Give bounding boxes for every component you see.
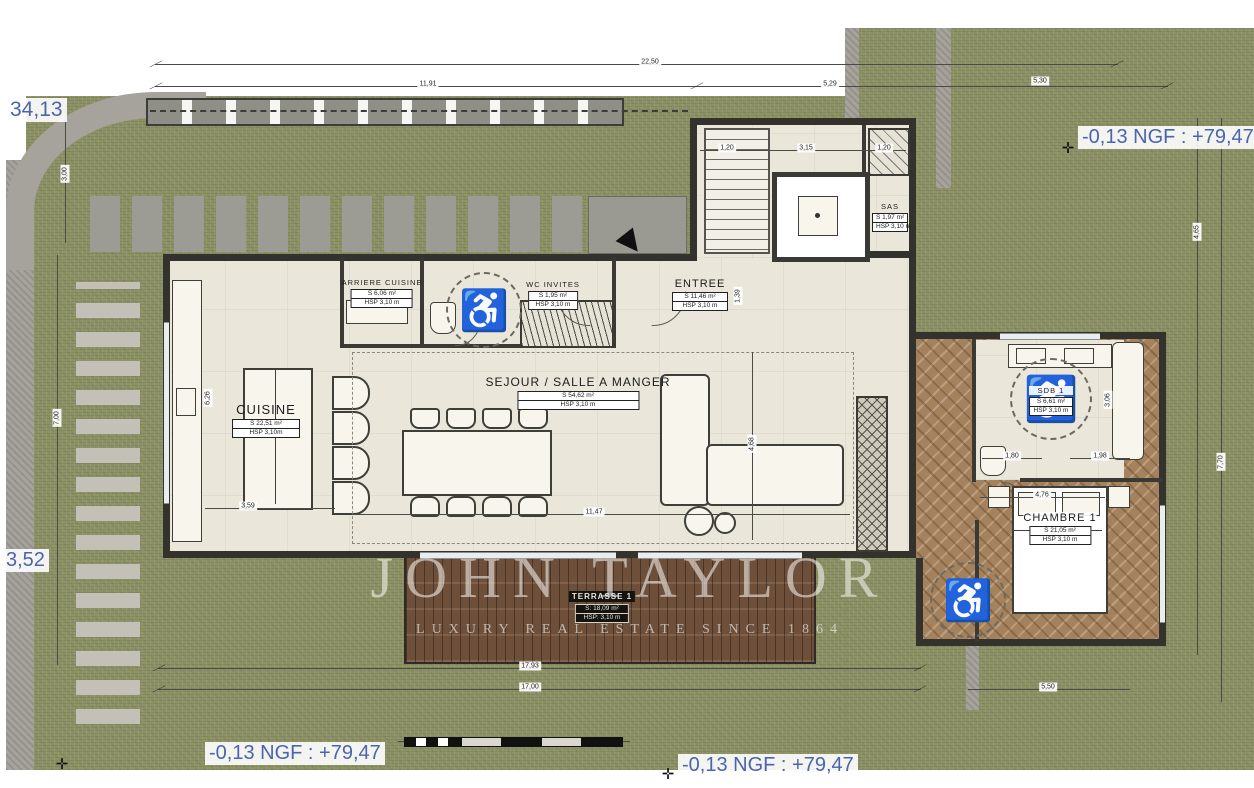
dim-label: 1,80 <box>1003 452 1021 461</box>
room-name: WC INVITES <box>526 280 580 289</box>
dim-tick: ／ <box>689 77 704 96</box>
dim-label: 1,98 <box>1091 452 1109 461</box>
scale-bar-segment <box>448 737 461 747</box>
ngf-label-bottom-left: -0,13 NGF : +79,47 <box>205 742 385 765</box>
dim-label: 3,15 <box>797 144 815 153</box>
dim-label: 5,50 <box>1039 683 1057 692</box>
dim-line <box>1221 118 1222 702</box>
dining-table <box>402 430 552 496</box>
window <box>1000 333 1100 340</box>
scale-bar-segment <box>501 737 543 747</box>
room-label-sdb-1: SDB 1 S 6,61 m²HSP 3,10 m <box>1029 386 1073 416</box>
dim-label: 4,76 <box>1033 491 1051 500</box>
room-area: S 22,51 m² <box>233 420 299 428</box>
kitchen-sink <box>176 388 196 416</box>
property-dash-line <box>150 110 688 112</box>
pouf <box>714 512 736 534</box>
bathtub <box>1112 342 1144 460</box>
dim-label: 1,20 <box>718 144 736 153</box>
wheelchair-glyph: ♿ <box>459 287 509 334</box>
dim-label: 7,70 <box>1217 453 1226 471</box>
boundary-wall-stub-2 <box>936 28 951 188</box>
wheelchair-icon: ♿ <box>446 272 522 348</box>
room-area: S 21,05 m² <box>1030 527 1090 535</box>
scale-bar-segment <box>581 737 623 747</box>
dim-label: 3,06 <box>1104 391 1113 409</box>
chair <box>410 408 440 429</box>
boundary-wall-stub-1 <box>845 28 859 120</box>
room-hsp: HSP 3,10 m <box>352 298 412 307</box>
room-hsp: HSP 3,10 m <box>673 301 727 310</box>
room-hsp: HSP 3,10 m <box>1030 406 1072 415</box>
room-area: S 1,95 m² <box>529 292 577 300</box>
ngf-label-top-right: -0,13 NGF : +79,47 <box>1078 126 1254 149</box>
room-name: SAS <box>872 202 908 211</box>
wall <box>916 639 1166 646</box>
wall <box>916 558 923 646</box>
wheelchair-glyph: ♿ <box>943 577 993 624</box>
dim-line <box>205 508 335 509</box>
window <box>1160 505 1165 623</box>
room-hsp: HSP 3,10 m <box>1030 535 1090 544</box>
dim-line <box>155 86 1168 87</box>
dim-label: 17,93 <box>519 662 541 671</box>
room-hsp: HSP 3,10 m <box>873 222 907 231</box>
dim-label: 5,30 <box>1031 77 1049 86</box>
wheelchair-icon: ♿ <box>930 562 1006 638</box>
pouf <box>684 506 714 536</box>
elevator-dot <box>815 213 820 218</box>
room-label-chambre-1: CHAMBRE 1 S 21,05 m²HSP 3,10 m <box>1023 512 1096 545</box>
window <box>164 322 169 504</box>
ngf-label-bottom-right: -0,13 NGF : +79,47 <box>678 754 858 777</box>
chair <box>446 408 476 429</box>
scale-bar-segment <box>461 737 503 747</box>
elevation-label-left: 3,52 <box>2 549 49 572</box>
boundary-wall-top <box>146 98 624 126</box>
room-label-cuisine: CUISINE S 22,51 m²HSP 3,10m <box>232 402 300 438</box>
kitchen-island <box>243 368 313 510</box>
dim-line <box>155 64 1118 65</box>
partition <box>1020 478 1162 482</box>
toilet <box>980 446 1006 476</box>
watermark-tagline: LUXURY REAL ESTATE SINCE 1864 <box>360 622 900 638</box>
dim-label: 4,65 <box>1193 223 1202 241</box>
dim-label: 11,47 <box>584 508 605 517</box>
watermark-brand: JOHN TAYLOR <box>360 544 900 611</box>
room-name: ENTREE <box>672 278 728 290</box>
room-hsp: HSP 3,10 m <box>529 300 577 309</box>
dim-label: 3,59 <box>239 502 257 511</box>
room-hsp: HSP 3,10m <box>233 428 299 437</box>
dim-label: 22,50 <box>639 58 661 67</box>
wall <box>909 118 916 258</box>
dim-label: 4,68 <box>748 435 757 453</box>
wall <box>690 118 697 258</box>
dim-label: 5,29 <box>821 80 839 89</box>
room-area: S 6,61 m² <box>1030 398 1072 406</box>
room-name: SDB 1 <box>1029 386 1073 395</box>
nightstand <box>1108 486 1130 508</box>
room-label-entree: ENTREE S 11,46 m²HSP 3,10 m <box>672 278 728 311</box>
chair <box>518 408 548 429</box>
room-name: CUISINE <box>232 402 300 417</box>
dim-label: 7,00 <box>53 409 62 427</box>
survey-cross-icon: ✛ <box>56 755 69 773</box>
floor-plan-canvas: ♿ ♿ ♿ CUISINE S 22,51 m²HSP 3,10m ARRIER… <box>0 0 1254 788</box>
dim-label: 1,20 <box>875 144 893 153</box>
room-name: ARRIERE CUISINE <box>342 278 423 287</box>
room-label-sas: SAS S 1,97 m²HSP 3,10 m <box>872 202 908 232</box>
dim-label: 3,00 <box>61 165 70 183</box>
survey-cross-icon: ✛ <box>1062 139 1075 157</box>
dim-label: 1,39 <box>734 287 743 305</box>
dim-label: 6,26 <box>204 389 213 407</box>
wall <box>909 254 916 558</box>
dim-tick: ／ <box>148 55 163 74</box>
room-label-wc-invites: WC INVITES S 1,95 m²HSP 3,10 m <box>526 280 580 310</box>
room-area: S 1,97 m² <box>873 214 907 222</box>
partition <box>972 339 976 482</box>
staircase <box>704 128 770 254</box>
room-area: S 54,62 m² <box>518 392 638 400</box>
dim-label: 11,91 <box>418 80 439 89</box>
wall <box>690 118 916 125</box>
room-area: S 6,06 m² <box>352 290 412 298</box>
room-area: S 11,46 m² <box>673 293 727 301</box>
chair <box>482 408 512 429</box>
dim-line <box>1197 118 1198 655</box>
survey-cross-icon: ✛ <box>662 765 675 783</box>
elevation-label-top-left: 34,13 <box>6 98 67 122</box>
scale-bar-segment <box>541 737 583 747</box>
room-hsp: HSP 3,10 m <box>518 400 638 409</box>
boundary-wall-stub-3 <box>966 646 979 710</box>
wall <box>862 251 916 258</box>
room-label-sejour: SEJOUR / SALLE A MANGER S 54,62 m²HSP 3,… <box>485 375 670 410</box>
room-hsp: HSP: 3,10 m <box>576 613 628 622</box>
parking-pavers <box>90 196 590 252</box>
dim-label: 17,00 <box>519 683 541 692</box>
room-name: SEJOUR / SALLE A MANGER <box>485 375 670 389</box>
sofa-seat <box>706 444 844 506</box>
louver-band <box>856 396 888 552</box>
room-name: CHAMBRE 1 <box>1023 512 1096 524</box>
dim-line <box>57 255 58 665</box>
room-label-arriere-cuisine: ARRIERE CUISINE S 6,06 m²HSP 3,10 m <box>342 278 423 308</box>
wall <box>163 254 697 261</box>
garden-path-slabs <box>76 282 140 724</box>
